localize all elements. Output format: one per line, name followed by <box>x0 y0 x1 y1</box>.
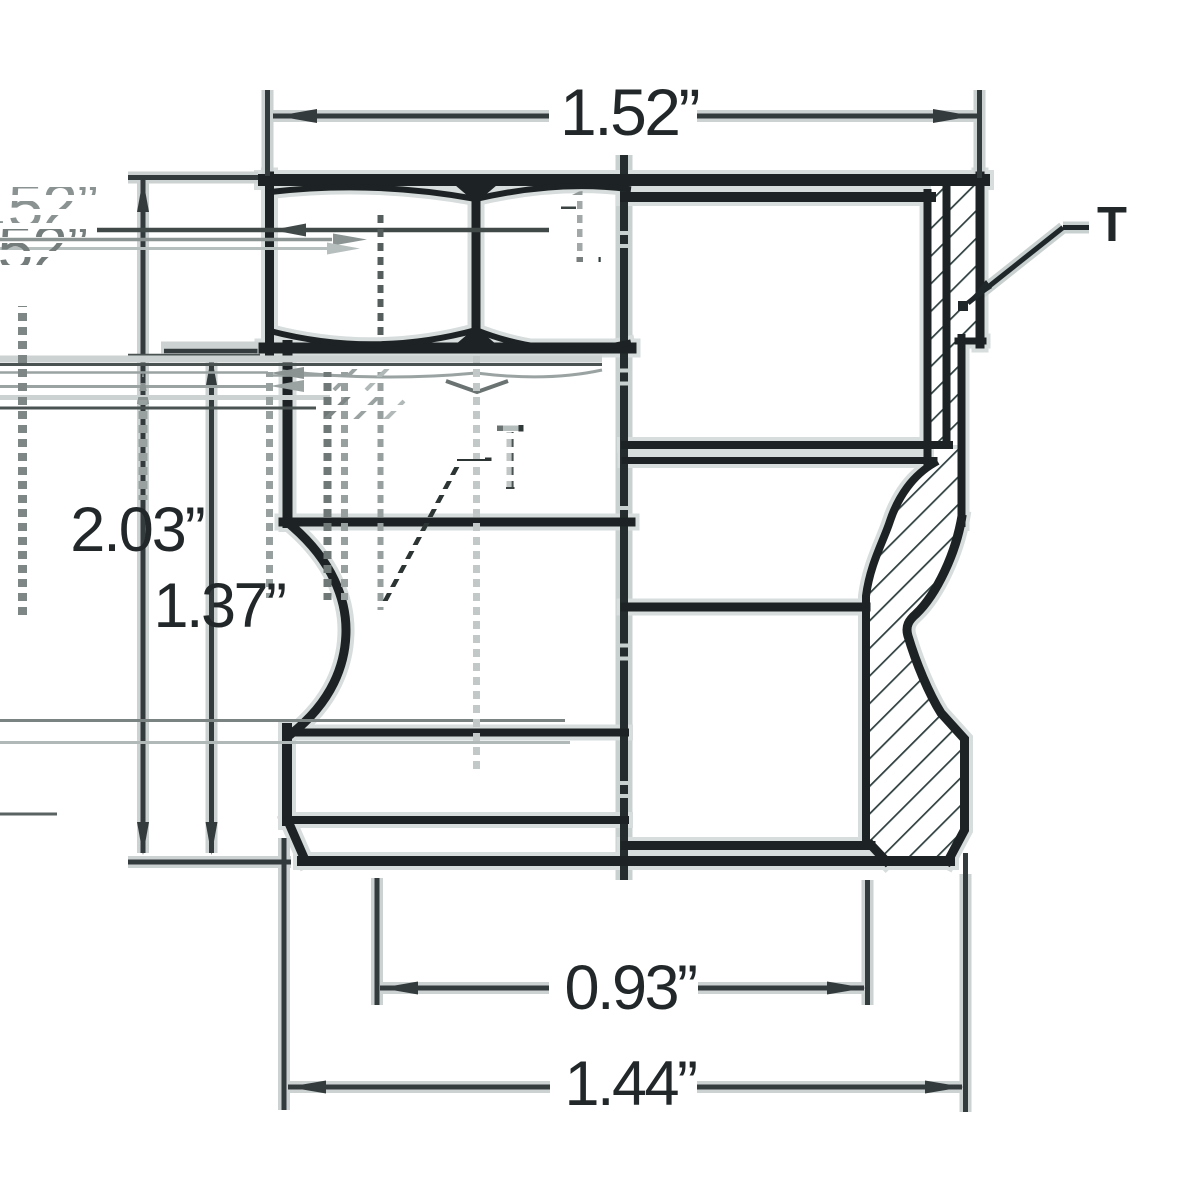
svg-text:1.44”: 1.44” <box>564 1049 696 1119</box>
svg-text:0.93”: 0.93” <box>564 953 696 1023</box>
svg-text:2.03”: 2.03” <box>70 495 204 565</box>
svg-text:1.52”: 1.52” <box>560 75 698 149</box>
svg-text:1.37”: 1.37” <box>153 571 285 641</box>
svg-text:.52”: .52” <box>0 212 87 284</box>
svg-text:T: T <box>1097 198 1127 252</box>
